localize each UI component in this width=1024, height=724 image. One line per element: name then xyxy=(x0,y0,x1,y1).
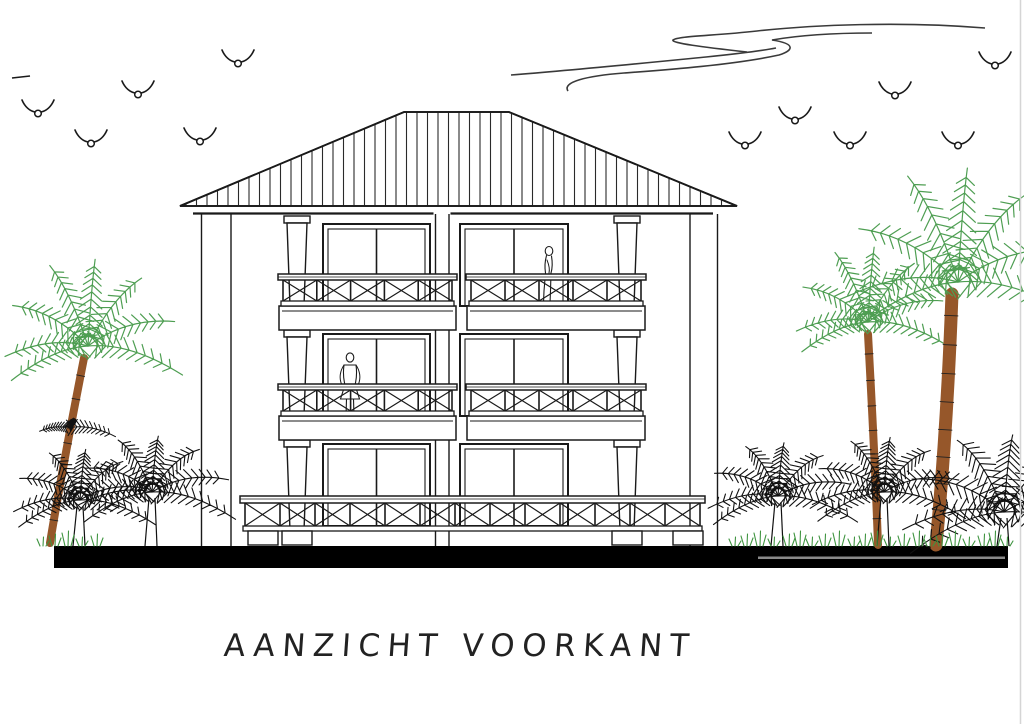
cloud-line xyxy=(673,24,985,52)
column xyxy=(284,330,310,416)
drawing-sheet: AANZICHT VOORKANT xyxy=(0,0,1024,724)
bird-icon xyxy=(834,132,866,149)
dead-branch xyxy=(40,418,116,436)
floor-slab xyxy=(467,416,645,440)
bird-icon xyxy=(222,50,254,67)
column xyxy=(614,330,640,416)
palm-bush xyxy=(903,435,1024,553)
bird-icon xyxy=(979,52,1011,69)
bird-icon xyxy=(22,100,54,117)
floor-slab xyxy=(467,306,645,330)
bird-icon xyxy=(779,107,811,124)
floor-slab xyxy=(279,416,456,440)
bird-icon xyxy=(729,132,761,149)
column xyxy=(284,440,310,531)
drawing-title: AANZICHT VOORKANT xyxy=(223,628,698,664)
window xyxy=(323,444,430,526)
bird-icon xyxy=(942,132,974,149)
ground-group xyxy=(54,546,1008,568)
pedestals-group xyxy=(248,531,703,545)
grass-group xyxy=(37,531,1013,546)
palm-bush xyxy=(14,449,156,546)
bird-icon xyxy=(879,82,911,99)
roof-group xyxy=(180,110,737,206)
window xyxy=(460,444,568,526)
bird-icon xyxy=(184,128,216,145)
elevation-drawing xyxy=(0,0,1024,724)
bird-icon xyxy=(75,130,107,147)
floor-slab xyxy=(279,306,456,330)
palm-bush xyxy=(79,436,236,546)
cloud-line xyxy=(567,33,872,91)
bird-icon xyxy=(122,81,154,98)
